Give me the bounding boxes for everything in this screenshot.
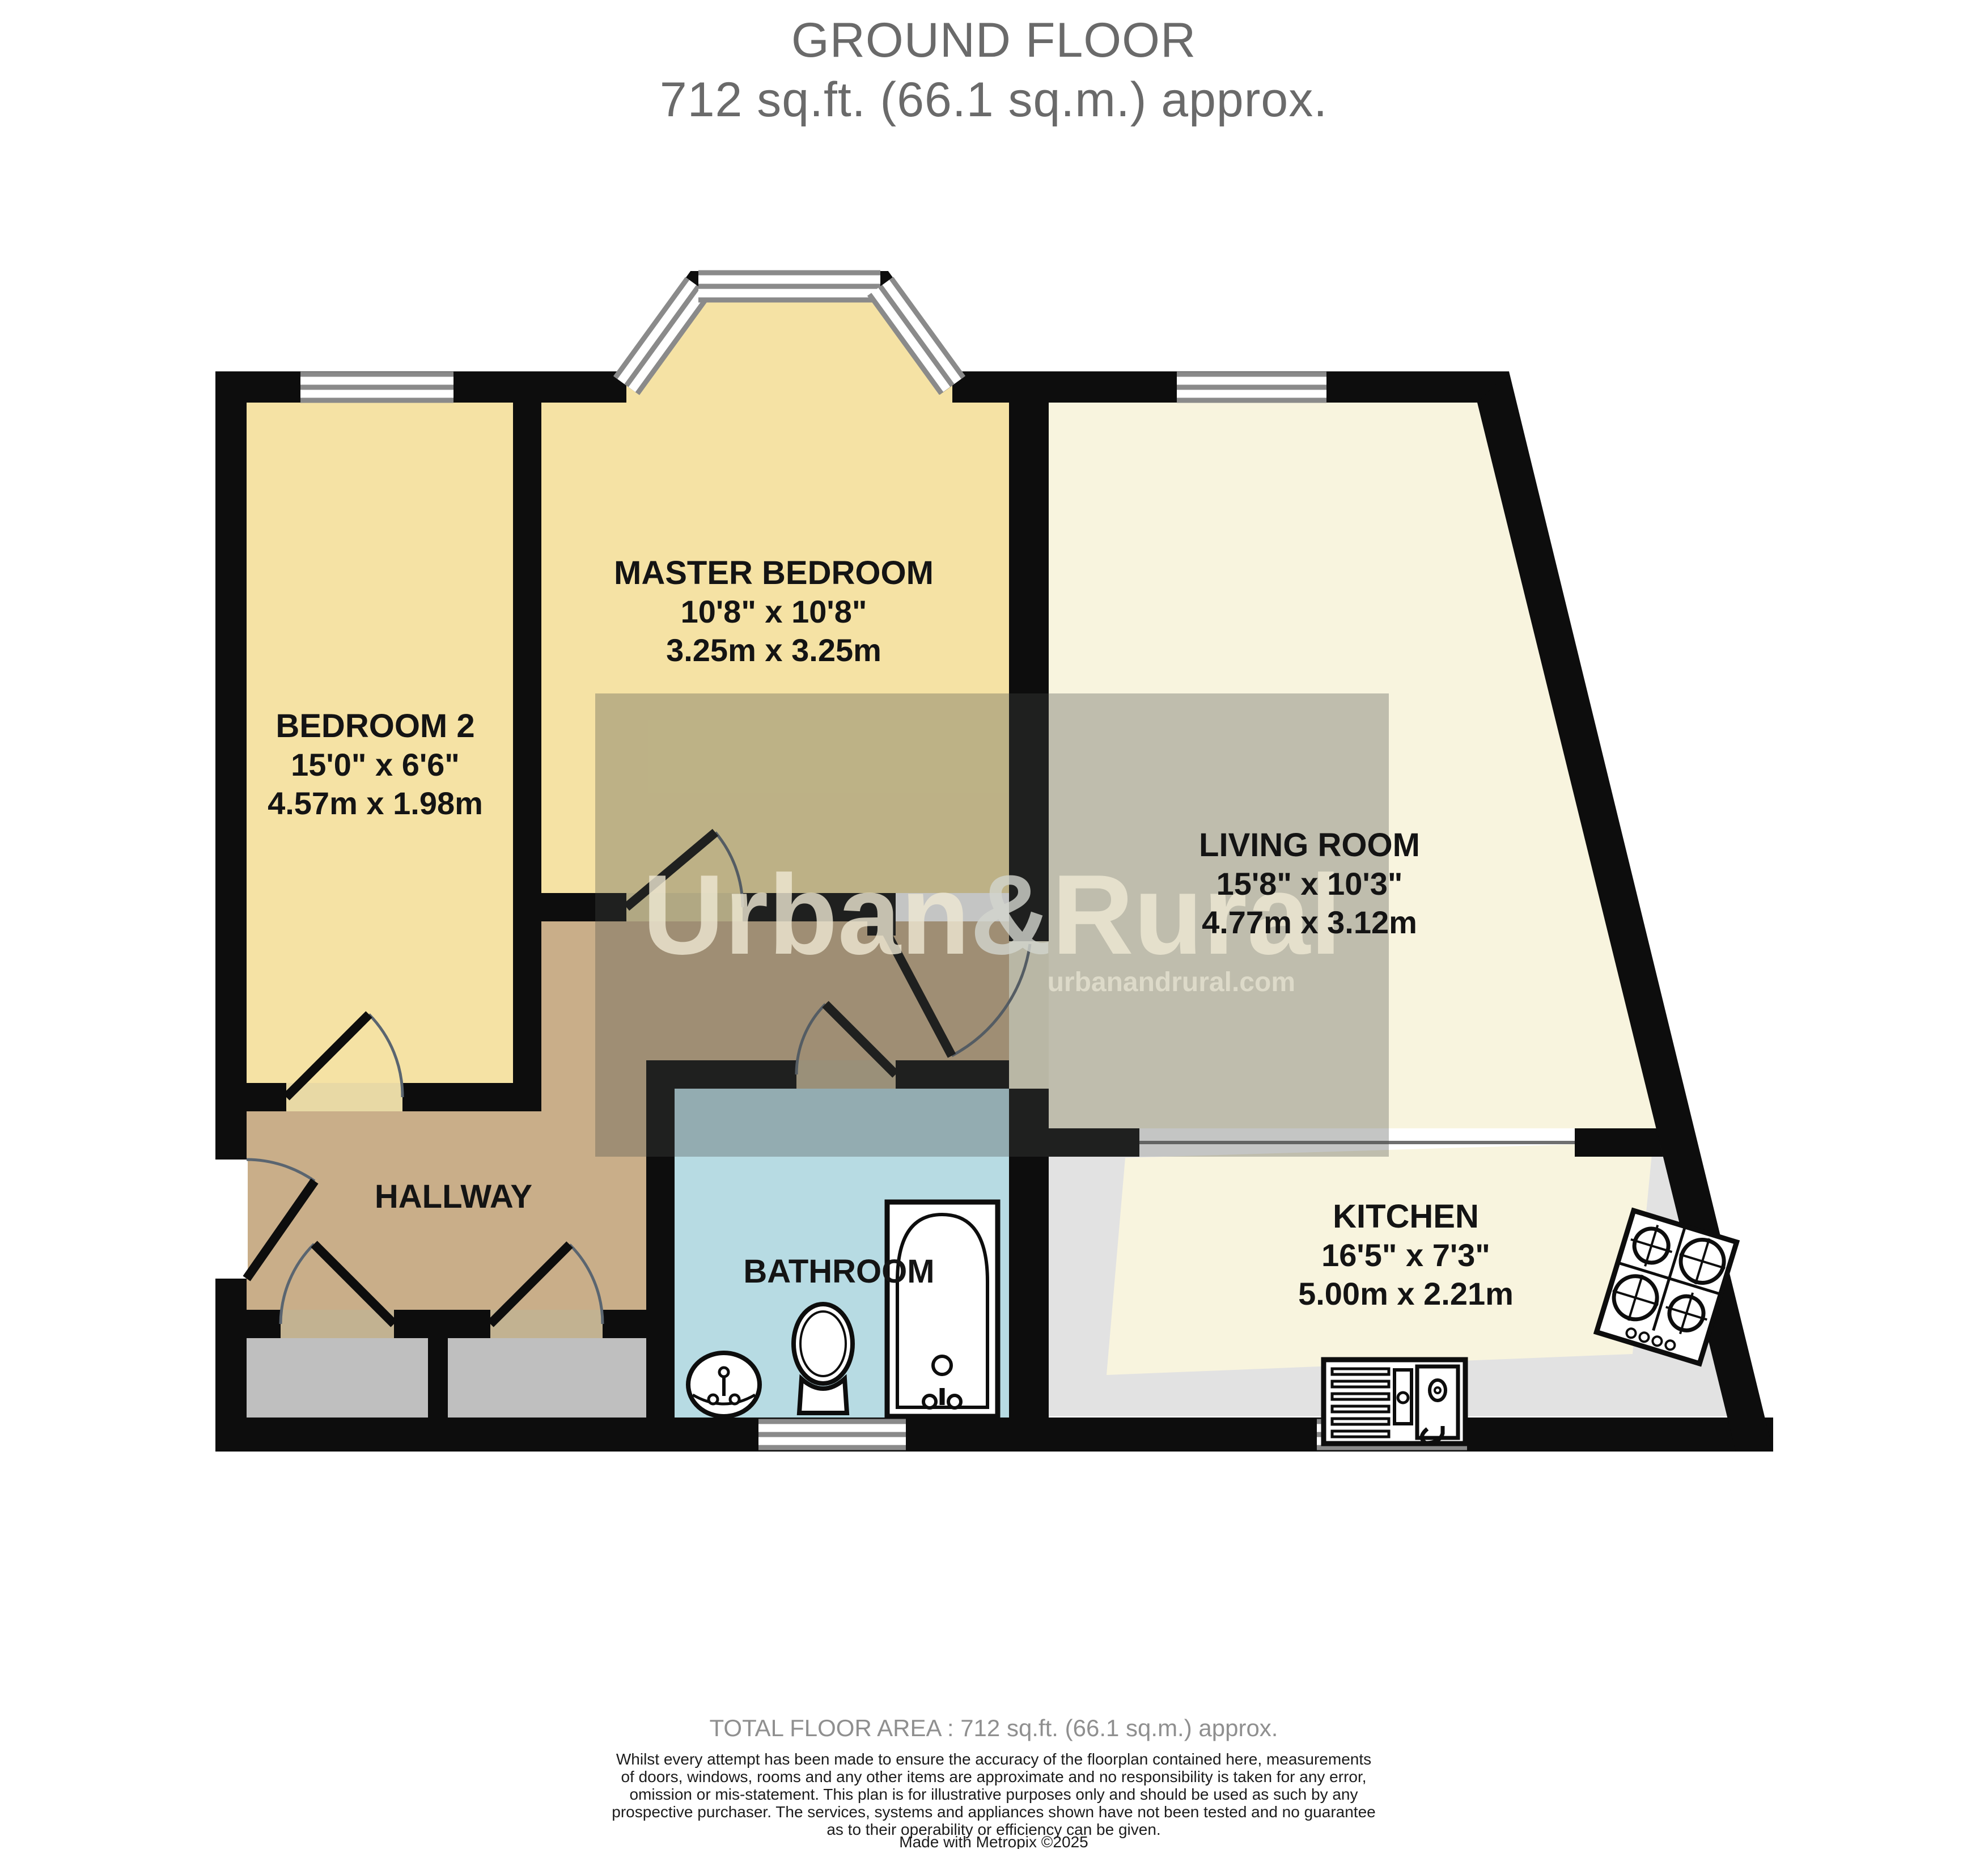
disclaimer-line-4: prospective purchaser. The services, sys… [612,1803,1375,1821]
svg-text:KITCHEN: KITCHEN [1333,1198,1479,1235]
label-bedroom2: BEDROOM 2 15'0" x 6'6" 4.57m x 1.98m [268,708,483,821]
floorplan-canvas: GROUND FLOOR 712 sq.ft. (66.1 sq.m.) app… [0,0,1988,1849]
svg-text:15'8" x 10'3": 15'8" x 10'3" [1216,866,1403,902]
footer: TOTAL FLOOR AREA : 712 sq.ft. (66.1 sq.m… [612,1715,1375,1849]
svg-text:BEDROOM 2: BEDROOM 2 [275,708,474,744]
label-bathroom: BATHROOM [743,1253,934,1290]
wall-bed2-bottom-a [215,1083,286,1111]
wall-closet-divider [428,1338,448,1420]
threshold-closet-right [490,1310,603,1338]
bathtub-icon [887,1202,998,1416]
toilet-icon [794,1304,853,1413]
bathroom-sink-icon [688,1353,760,1416]
closet-left-floor [247,1338,428,1418]
wall-bottom [215,1418,1773,1452]
wall-bed2-master-divider [513,371,541,1111]
page-title: GROUND FLOOR [791,13,1196,67]
threshold-bedroom2 [286,1083,402,1111]
disclaimer-line-2: of doors, windows, rooms and any other i… [621,1768,1366,1785]
svg-text:5.00m x 2.21m: 5.00m x 2.21m [1298,1276,1514,1311]
threshold-closet-left [281,1310,394,1338]
entry-door-gap [214,1160,248,1279]
window-bedroom2 [300,373,453,402]
floorplan-page: GROUND FLOOR 712 sq.ft. (66.1 sq.m.) app… [0,0,1988,1849]
wall-bed2-bottom-b [402,1083,513,1111]
wall-closet-top-b [394,1310,490,1338]
closet-right-floor [448,1338,646,1418]
window-bathroom [758,1420,906,1449]
svg-text:15'0" x 6'6": 15'0" x 6'6" [291,747,460,782]
disclaimer-line-3: omission or mis-statement. This plan is … [629,1785,1358,1803]
svg-text:16'5" x 7'3": 16'5" x 7'3" [1321,1237,1490,1273]
bay-window-top [698,271,880,302]
disclaimer-line-1: Whilst every attempt has been made to en… [616,1750,1371,1768]
svg-text:3.25m x 3.25m: 3.25m x 3.25m [666,632,881,668]
credit-line: Made with Metropix ©2025 [899,1833,1088,1849]
svg-text:10'8" x 10'8": 10'8" x 10'8" [681,594,867,629]
wall-closet-top-c [603,1310,646,1338]
label-living-room: LIVING ROOM 15'8" x 10'3" 4.77m x 3.12m [1199,827,1420,940]
title-block: GROUND FLOOR 712 sq.ft. (66.1 sq.m.) app… [660,13,1328,127]
wall-kitchen-divider-b [1575,1128,1663,1157]
svg-text:4.77m x 3.12m: 4.77m x 3.12m [1202,904,1417,940]
page-subtitle: 712 sq.ft. (66.1 sq.m.) approx. [660,73,1328,127]
total-floor-area: TOTAL FLOOR AREA : 712 sq.ft. (66.1 sq.m… [710,1715,1278,1741]
window-living [1177,373,1326,402]
label-hallway: HALLWAY [375,1178,532,1215]
svg-text:4.57m x 1.98m: 4.57m x 1.98m [268,785,483,821]
kitchen-sink-icon [1324,1360,1465,1444]
watermark-website: urbanandrural.com [1048,967,1295,997]
svg-text:MASTER BEDROOM: MASTER BEDROOM [614,555,934,591]
wall-closet-top-a [247,1310,281,1338]
wall-left [215,371,247,1452]
svg-text:LIVING ROOM: LIVING ROOM [1199,827,1420,864]
